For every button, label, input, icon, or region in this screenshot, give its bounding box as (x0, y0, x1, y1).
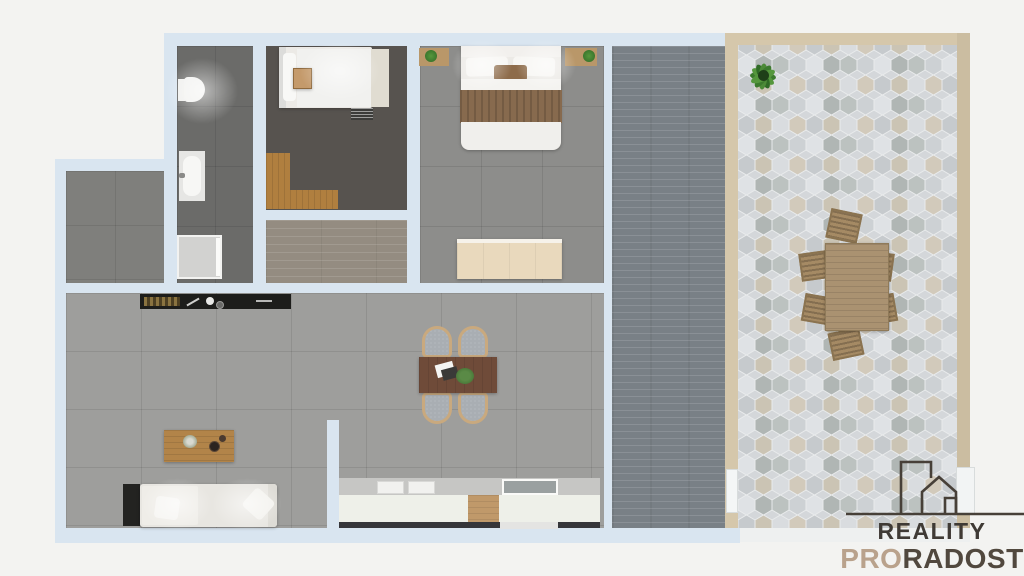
dishwasher-front (500, 522, 558, 529)
kitchen-sink (502, 479, 558, 495)
double-bed-headboard (461, 46, 561, 57)
wardrobe (457, 239, 562, 279)
house-buildings-outline-icon (840, 455, 1024, 517)
radiator (351, 108, 373, 120)
bathtub-faucet (179, 173, 185, 178)
wall-living-stub (327, 420, 339, 528)
wall-middle-horizontal (66, 283, 604, 293)
bed-tray-table (293, 68, 312, 89)
kitchen-utensil (256, 300, 272, 302)
dining-table-plant (456, 368, 474, 384)
nightstand-left-plant (425, 50, 437, 62)
terrace-door-left (726, 469, 738, 513)
coffee-table-bowl-dark (209, 441, 220, 452)
balcony-corridor (612, 46, 725, 528)
wall-corridor-left (604, 46, 612, 528)
kitchen-cabinet-wood (468, 495, 499, 522)
bar-stool (377, 481, 404, 494)
logo-icon-paths (846, 462, 1024, 514)
dining-chair (422, 392, 452, 424)
brand-line1: REALITY (840, 520, 1024, 543)
bar-stool (408, 481, 435, 494)
bathtub-basin (183, 156, 201, 196)
brand-line2: PRORADOST (838, 545, 1024, 573)
nightstand-right-plant (583, 50, 595, 62)
wall-bathroom-bedroom (253, 46, 266, 283)
kitchen-sink-dot (216, 301, 224, 309)
terrace-frame-top (725, 33, 970, 45)
kitchen-plinth-shadow (339, 522, 600, 528)
wall-top (164, 33, 725, 46)
bed-side-panel (371, 49, 389, 107)
desk-horizontal (266, 190, 338, 209)
wall-bottom (55, 528, 740, 543)
kitchen-gold-mat (144, 297, 180, 306)
double-bed-blanket (460, 90, 562, 123)
double-bed-duvet (461, 122, 561, 150)
terrace-plant (736, 46, 792, 108)
wall-bedroom-hallway (266, 210, 407, 220)
room-hallway (266, 220, 407, 283)
room-storage (66, 171, 164, 283)
coffee-table-bowl-small (219, 435, 226, 442)
floor-plan: REALITY PRORADOST (0, 0, 1024, 576)
wall-extension-top (55, 159, 177, 171)
dining-chair (422, 326, 452, 358)
wall-left-outer (55, 159, 66, 543)
brand-rest: RADOST (902, 543, 1023, 574)
plant-center (758, 70, 769, 81)
brand-accent: PRO (840, 543, 902, 574)
sofa-pillow (154, 495, 181, 520)
outdoor-chair (825, 208, 863, 244)
wall-bedrooms-divider (407, 46, 420, 283)
kitchen-bowl (206, 297, 214, 305)
dining-chair (458, 326, 488, 358)
shower-door (216, 238, 220, 276)
sofa-side-unit (123, 484, 140, 526)
outdoor-dining-table (825, 243, 889, 331)
coffee-table-plant (183, 435, 197, 448)
dining-chair (458, 392, 488, 424)
